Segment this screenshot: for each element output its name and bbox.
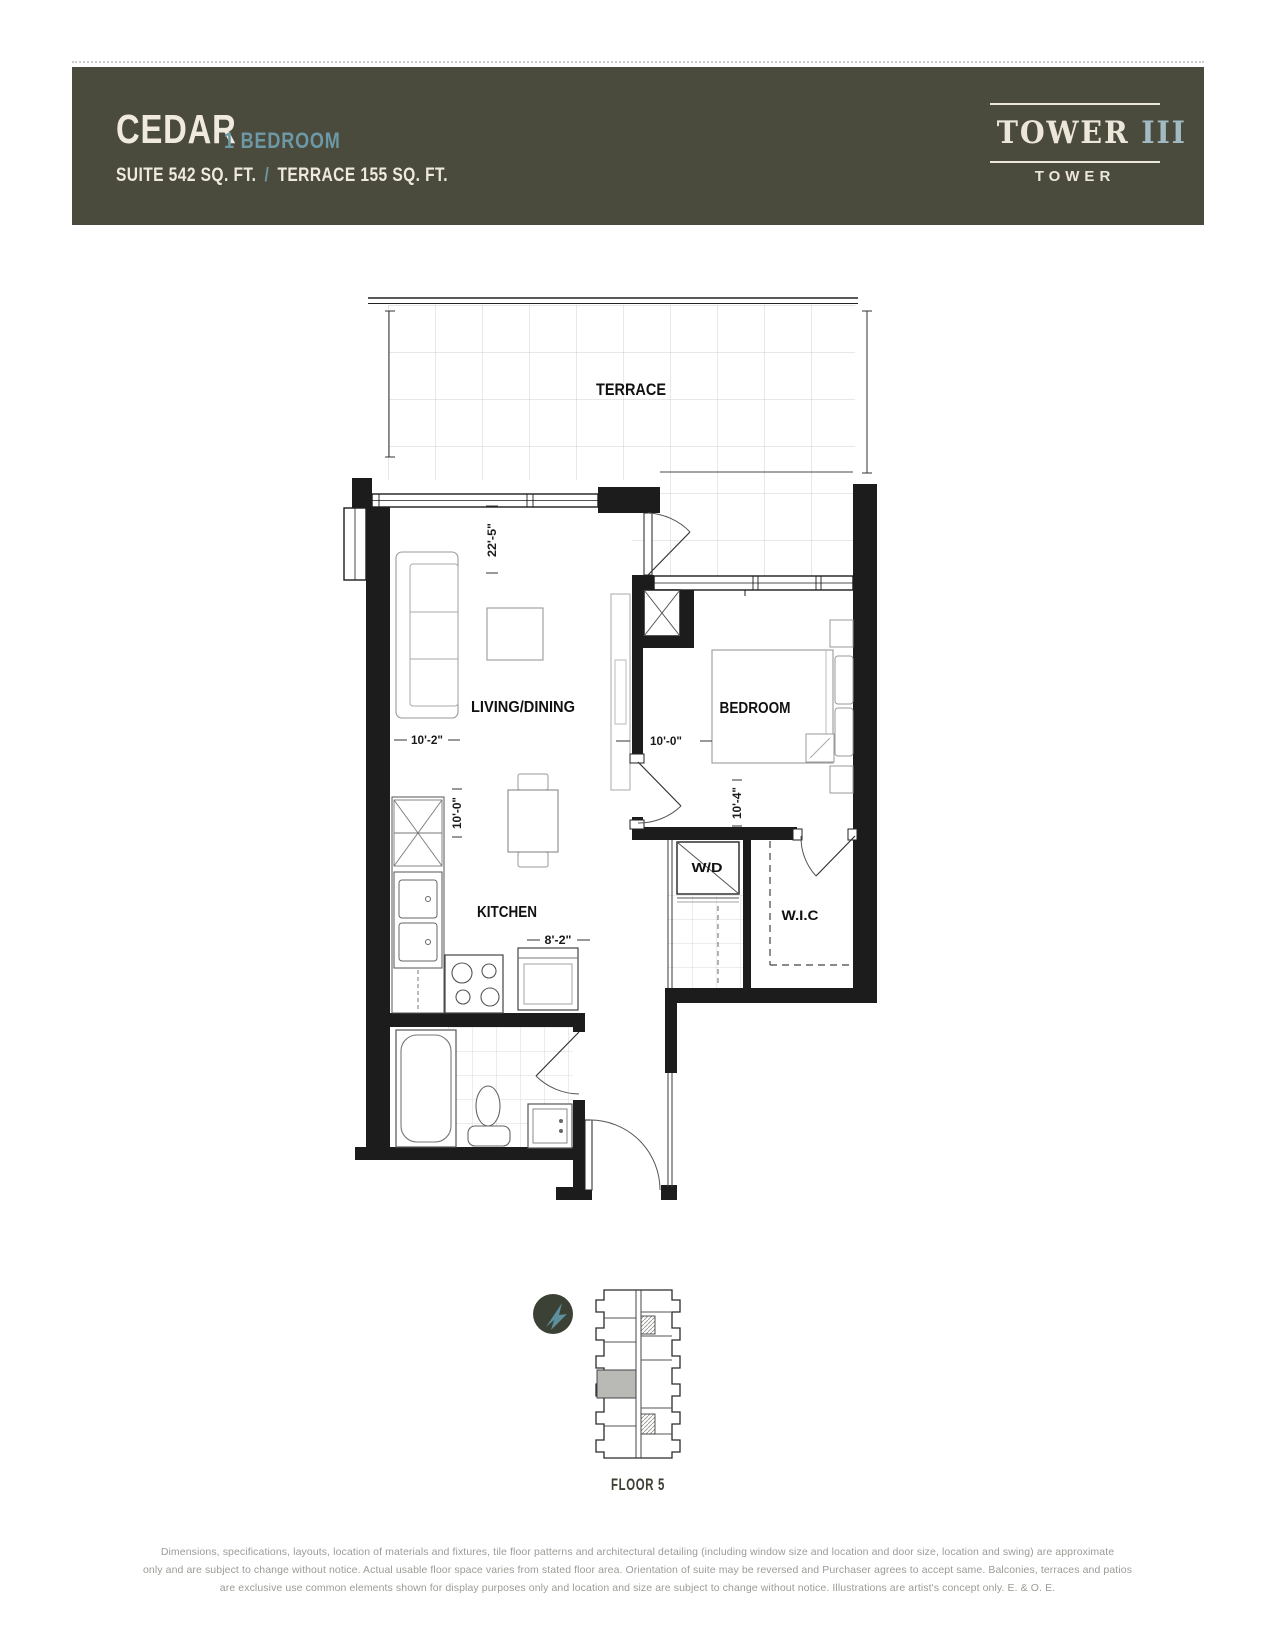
- disclaimer-line: Dimensions, specifications, layouts, loc…: [0, 1543, 1275, 1561]
- tower-logo: TOWER III TOWER: [990, 103, 1160, 185]
- living-window: [372, 494, 598, 507]
- sofa: [396, 552, 458, 718]
- nightstand: [830, 620, 853, 647]
- nightstand: [830, 766, 853, 793]
- label-terrace: TERRACE: [596, 380, 666, 399]
- floor-label: FLOOR 5: [611, 1475, 665, 1494]
- laundry-tiles: [668, 895, 743, 988]
- disclaimer-line: only and are subject to change without n…: [0, 1561, 1275, 1579]
- highlighted-unit: [597, 1370, 636, 1398]
- label-bedroom: BEDROOM: [720, 700, 791, 717]
- north-indicator: [533, 1294, 573, 1334]
- terrace-area: TERRACE 155 SQ. FT.: [277, 165, 448, 186]
- label-wic: W.I.C: [782, 907, 819, 923]
- floorplan-drawing: 22'-5" 10'-2" 10'-0" 8'-2" 10'-0" 10'-4"…: [330, 270, 910, 1230]
- keyplan-building: [596, 1290, 680, 1458]
- plan-name: CEDAR: [116, 107, 237, 151]
- disclaimer-line: are exclusive use common elements shown …: [0, 1579, 1275, 1597]
- counter-appliance: [518, 948, 578, 1010]
- pillow: [835, 708, 853, 756]
- logo-wordmark: TOWER III: [997, 105, 1153, 161]
- header-dotted-rule: [72, 61, 1204, 63]
- keyplan: FLOOR 5: [505, 1270, 725, 1495]
- plan-header: CEDAR 1 BEDROOM SUITE 542 SQ. FT./TERRAC…: [72, 67, 1204, 225]
- dim-bedroom-depth: 10'-4": [732, 787, 744, 819]
- tv-console: [611, 594, 630, 790]
- pillow: [835, 656, 853, 704]
- label-kitchen: KITCHEN: [477, 904, 537, 921]
- stove: [445, 955, 503, 1013]
- dim-terrace-window: 22'-5": [487, 523, 499, 557]
- corner-window: [344, 508, 366, 580]
- coffee-table: [487, 608, 543, 660]
- floorplan-page: CEDAR 1 BEDROOM SUITE 542 SQ. FT./TERRAC…: [0, 0, 1275, 1650]
- dim-kitchen-depth: 10'-0": [452, 797, 464, 829]
- area-line: SUITE 542 SQ. FT./TERRACE 155 SQ. FT.: [116, 165, 448, 187]
- shaft: [644, 590, 680, 636]
- dim-kitchen-width: 8'-2": [545, 935, 572, 947]
- label-wd: W/D: [692, 860, 723, 875]
- kitchen-counter: [392, 797, 444, 1013]
- dim-bedroom-width: 10'-0": [650, 736, 682, 748]
- vanity-sink: [528, 1104, 572, 1148]
- dim-living-width: 10'-2": [411, 735, 443, 747]
- logo-numeral: III: [1141, 115, 1187, 151]
- area-separator: /: [256, 165, 277, 186]
- bathtub: [396, 1030, 456, 1147]
- label-living: LIVING/DINING: [471, 699, 575, 716]
- disclaimer: Dimensions, specifications, layouts, loc…: [0, 1543, 1275, 1597]
- logo-bottom-rule: [990, 161, 1160, 163]
- logo-word: TOWER: [997, 115, 1130, 151]
- plan-type: 1 BEDROOM: [224, 129, 341, 153]
- suite-area: SUITE 542 SQ. FT.: [116, 165, 256, 186]
- logo-subtitle: TOWER: [990, 168, 1160, 185]
